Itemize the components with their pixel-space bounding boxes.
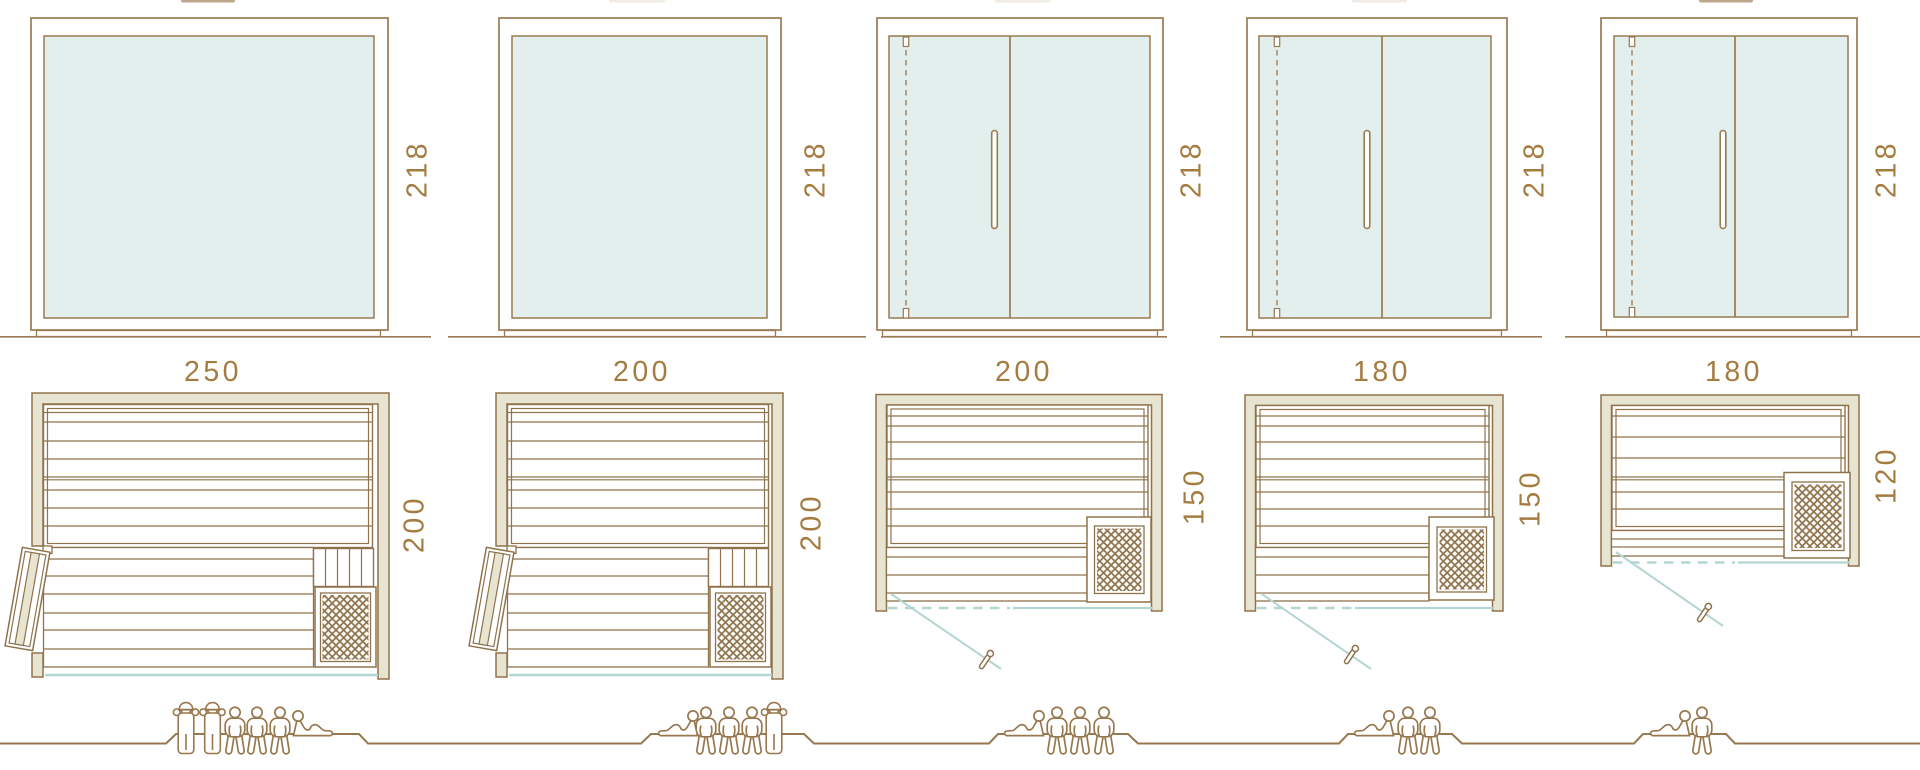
svg-text:180: 180 bbox=[1705, 356, 1763, 388]
svg-text:250: 250 bbox=[184, 356, 242, 388]
svg-text:200: 200 bbox=[995, 356, 1053, 388]
svg-text:150: 150 bbox=[1179, 467, 1211, 525]
svg-text:180: 180 bbox=[1353, 356, 1411, 388]
svg-text:120: 120 bbox=[1871, 446, 1903, 504]
svg-text:200: 200 bbox=[796, 493, 828, 551]
svg-text:200: 200 bbox=[399, 495, 431, 553]
svg-text:150: 150 bbox=[1515, 469, 1547, 527]
svg-text:218: 218 bbox=[1871, 140, 1903, 198]
svg-text:218: 218 bbox=[402, 140, 434, 198]
svg-text:218: 218 bbox=[1519, 140, 1551, 198]
svg-text:218: 218 bbox=[800, 140, 832, 198]
svg-text:218: 218 bbox=[1176, 140, 1208, 198]
svg-text:200: 200 bbox=[613, 356, 671, 388]
